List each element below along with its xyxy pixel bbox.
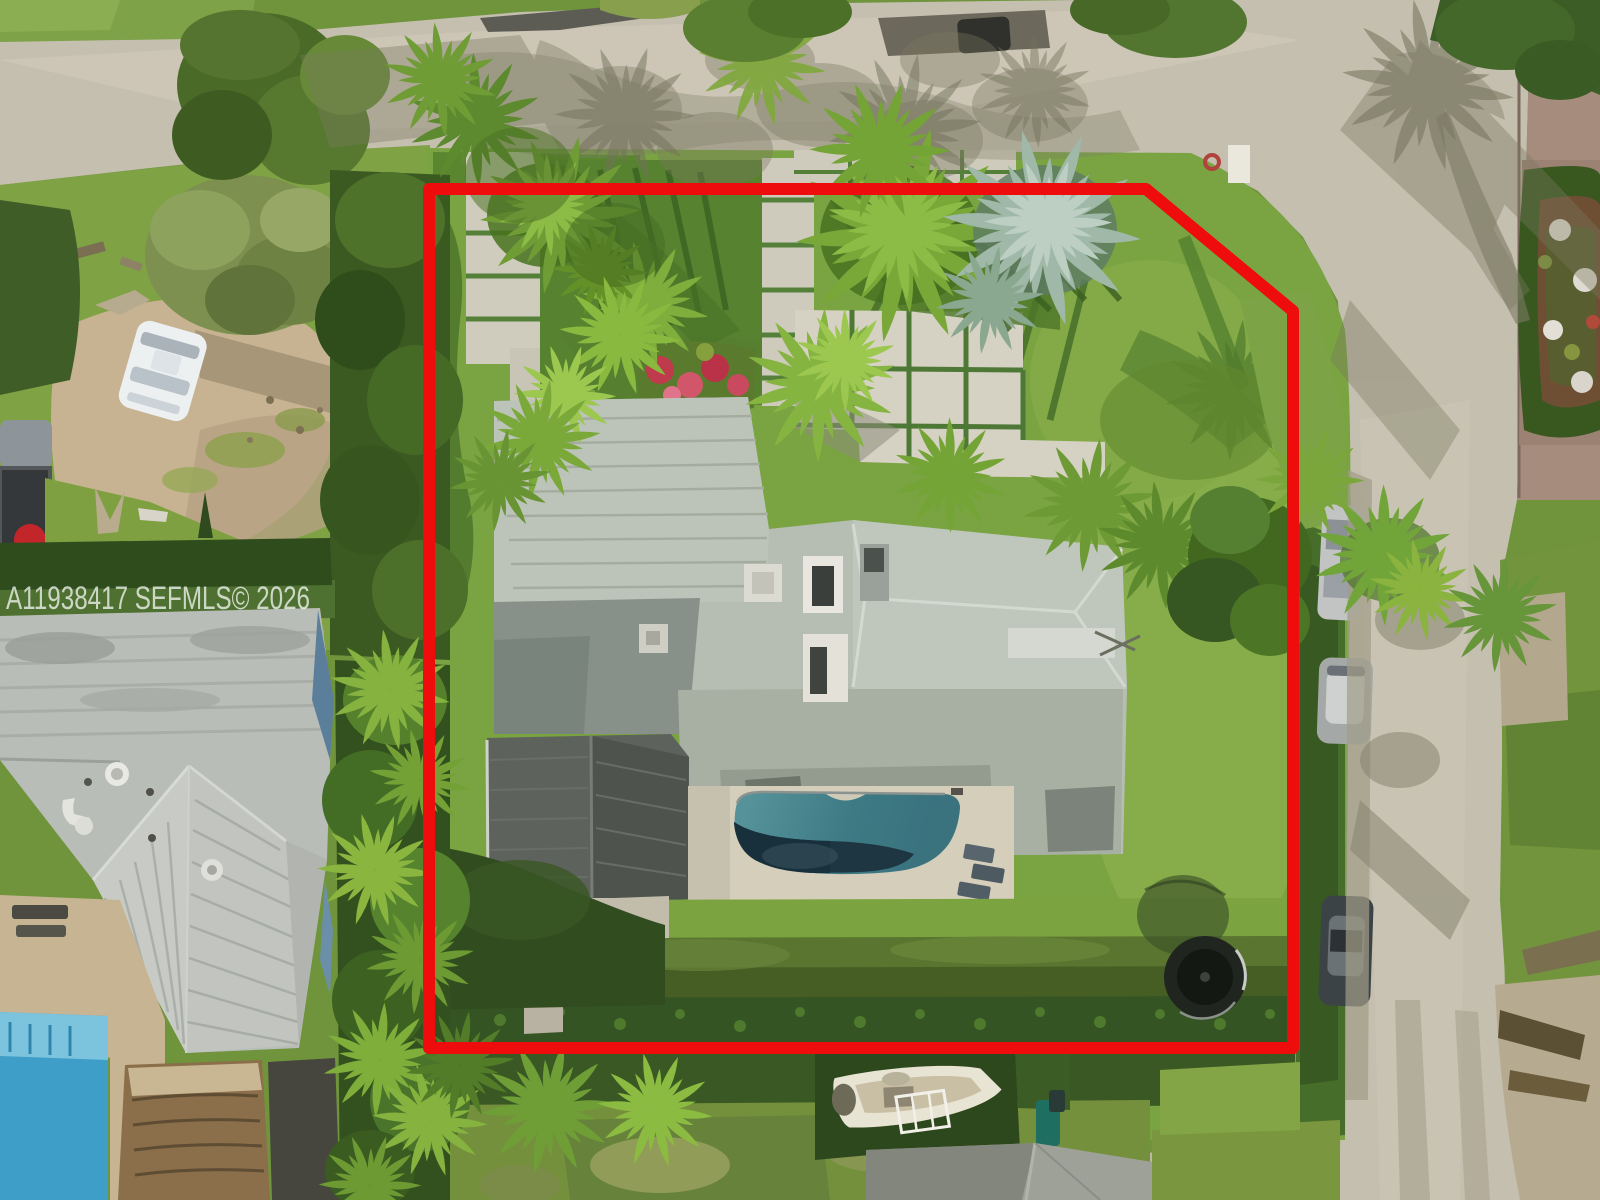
svg-text:A11938417 SEFMLS© 2026: A11938417 SEFMLS© 2026 bbox=[6, 580, 310, 616]
